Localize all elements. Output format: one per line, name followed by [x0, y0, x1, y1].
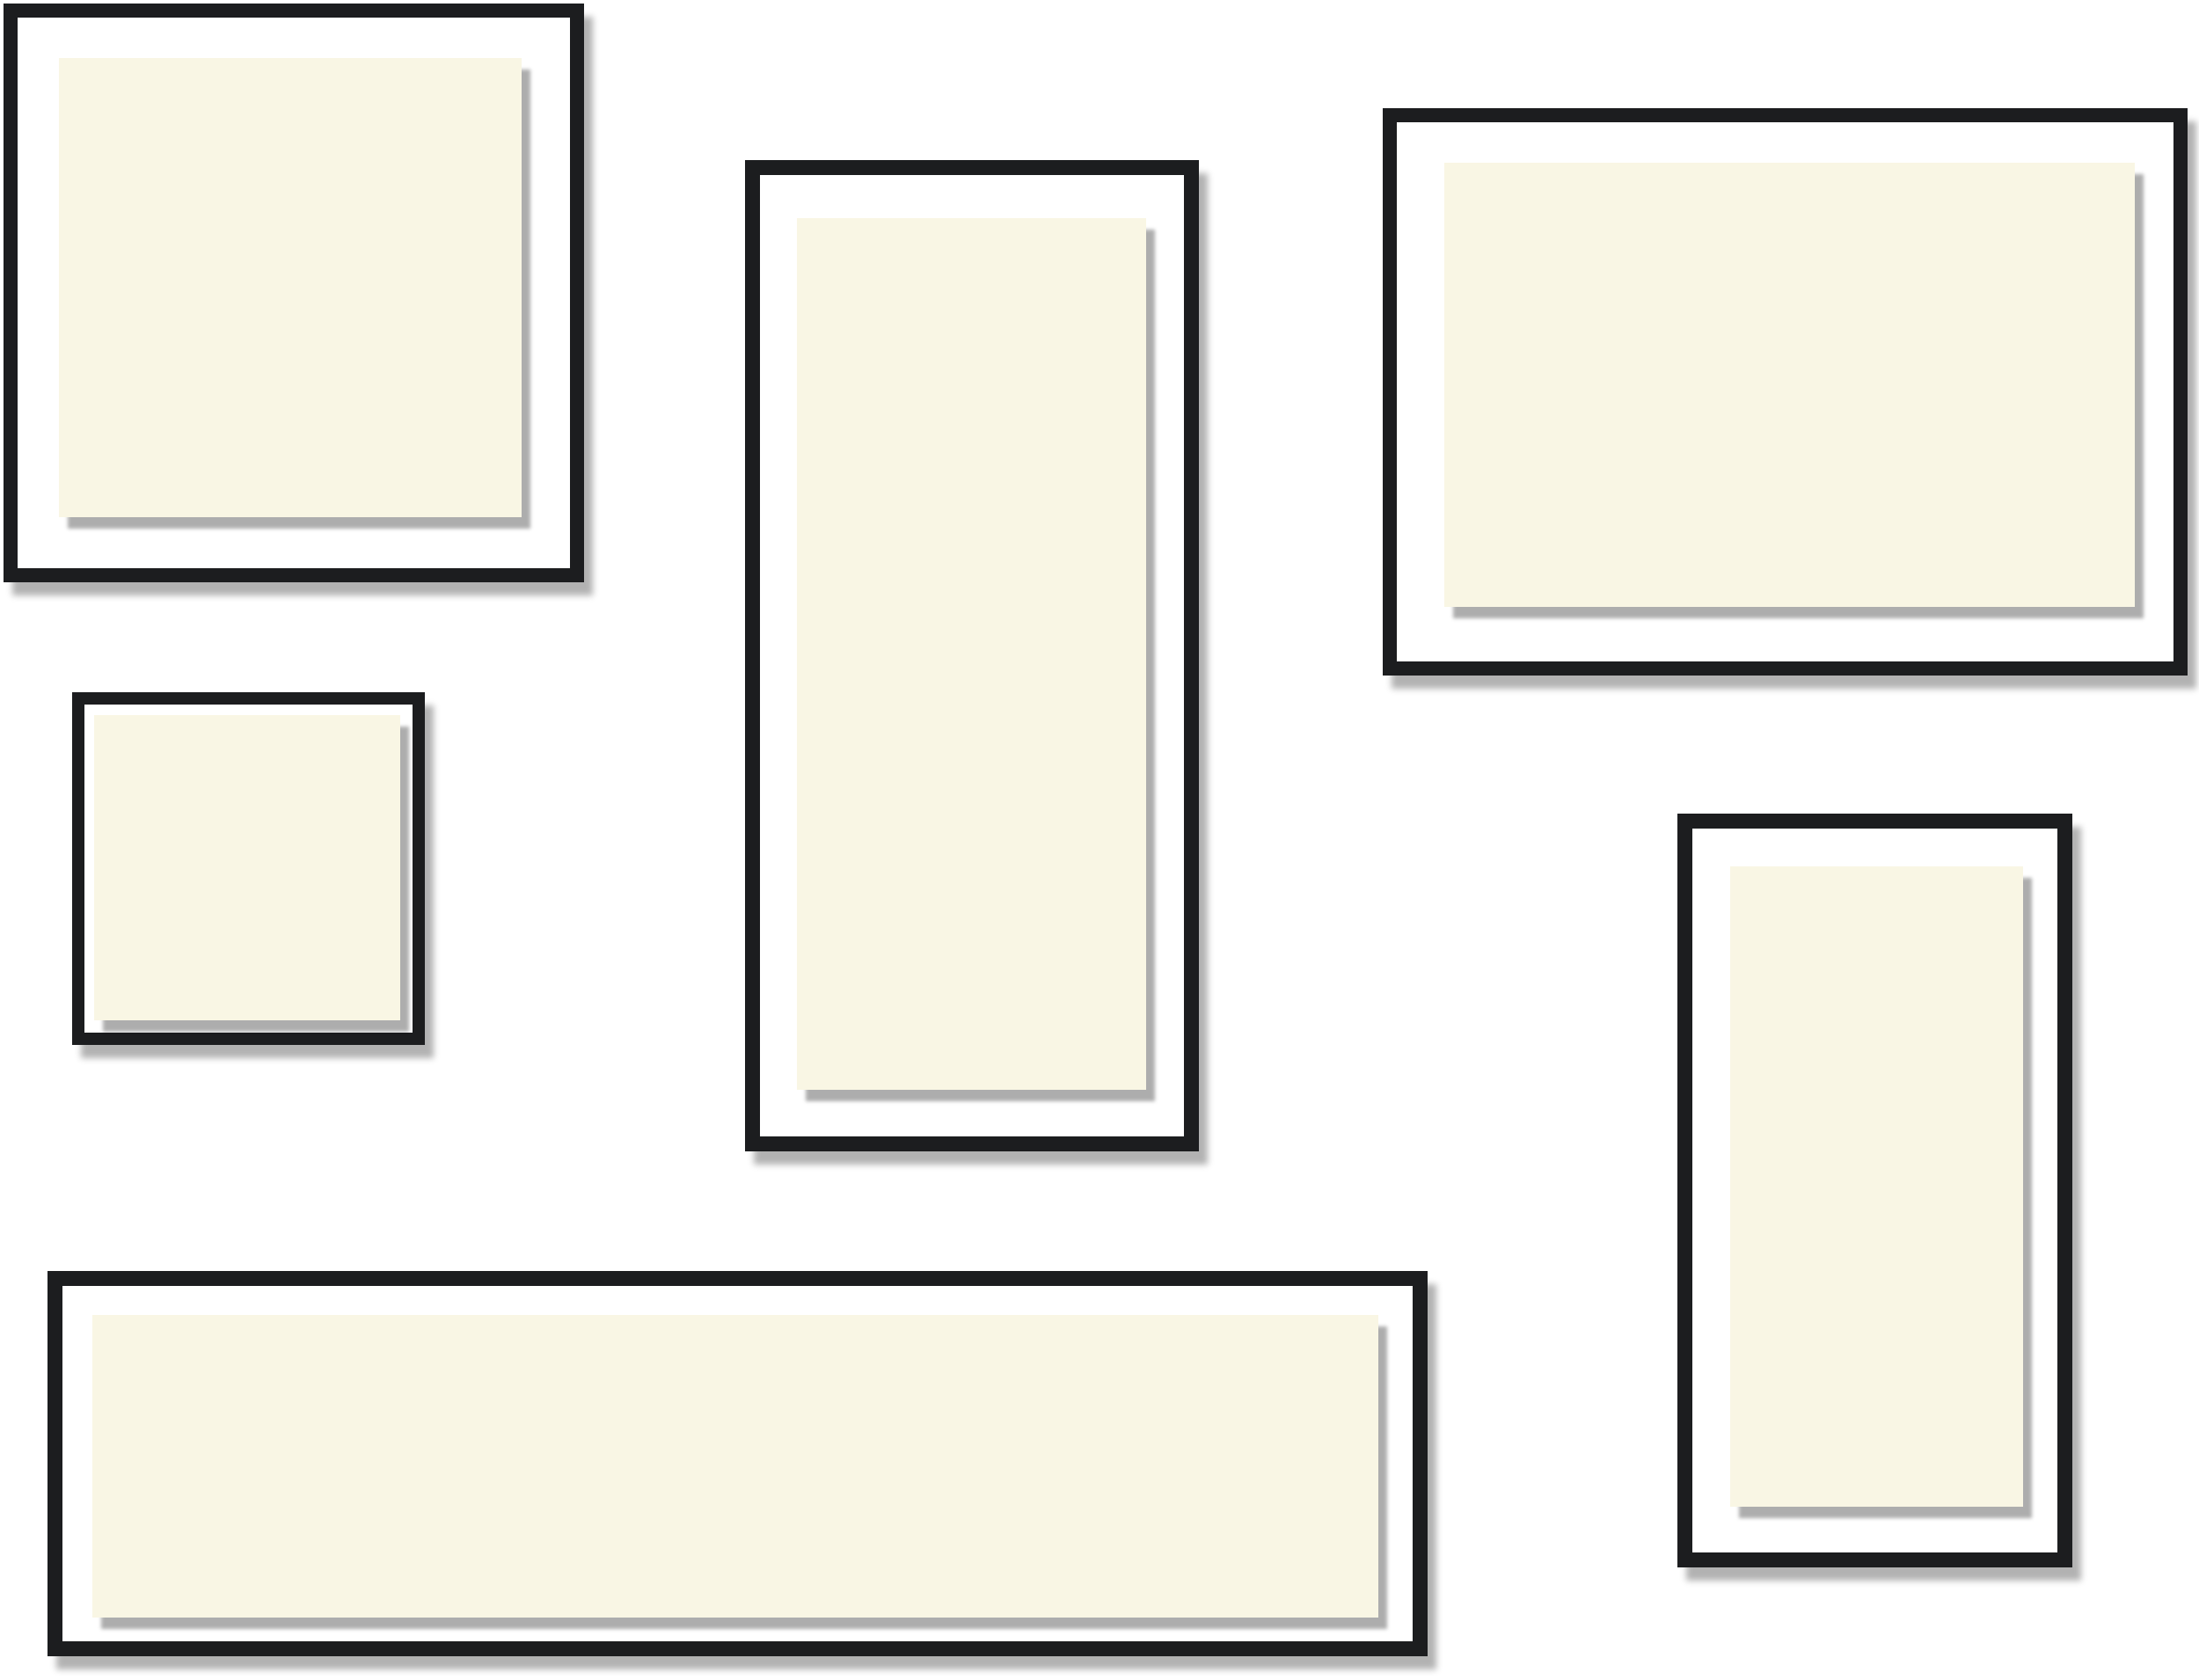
- blank-artwork-paper: [92, 1315, 1378, 1618]
- gallery-wall: [0, 0, 2199, 1680]
- frame-tall-portrait-center: [745, 160, 1199, 1151]
- blank-artwork-paper: [94, 715, 400, 1020]
- frame-mat: [1397, 122, 2173, 661]
- frame-wide-panorama-bottom: [47, 1271, 1428, 1656]
- frame-small-square-mid-left: [72, 692, 425, 1045]
- frame-mat: [18, 18, 570, 568]
- blank-artwork-paper: [59, 58, 522, 517]
- frame-portrait-bottom-right: [1677, 814, 2072, 1567]
- frame-landscape-top-right: [1383, 108, 2188, 676]
- blank-artwork-paper: [1444, 163, 2135, 607]
- blank-artwork-paper: [797, 218, 1146, 1090]
- frame-mat: [1692, 829, 2057, 1552]
- frame-mat: [84, 705, 413, 1033]
- frame-large-square-top-left: [4, 4, 584, 582]
- frame-mat: [760, 175, 1184, 1136]
- blank-artwork-paper: [1730, 866, 2023, 1507]
- frame-mat: [62, 1286, 1413, 1641]
